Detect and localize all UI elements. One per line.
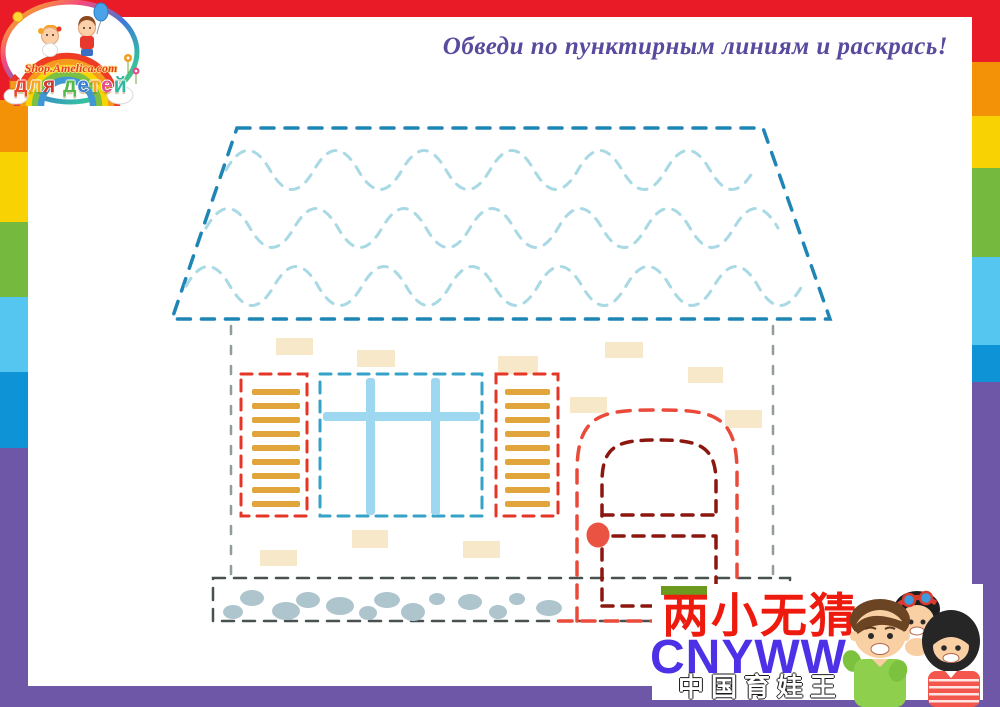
green-shirt-boy-icon xyxy=(840,599,910,707)
window-frame-bars xyxy=(323,378,480,515)
door-inner-outline xyxy=(602,440,716,606)
logo: Shop.Amelica.com для детей xyxy=(0,0,146,112)
foundation-pebbles xyxy=(223,590,562,621)
roof-wavy-lines xyxy=(186,151,802,306)
window-outline xyxy=(320,374,482,516)
sun-icon xyxy=(13,12,23,22)
worksheet-instruction: Обведи по пунктирным линиям и раскрась! xyxy=(328,33,948,61)
door-knob xyxy=(587,523,610,548)
logo-tagline-text: для детей xyxy=(4,74,138,98)
striped-shirt-girl-icon xyxy=(922,610,980,707)
wall-bricks xyxy=(260,338,762,566)
left-shutter-slats xyxy=(252,389,300,507)
watermark-cartoon-kids xyxy=(810,573,996,707)
right-shutter-slats xyxy=(505,389,550,507)
